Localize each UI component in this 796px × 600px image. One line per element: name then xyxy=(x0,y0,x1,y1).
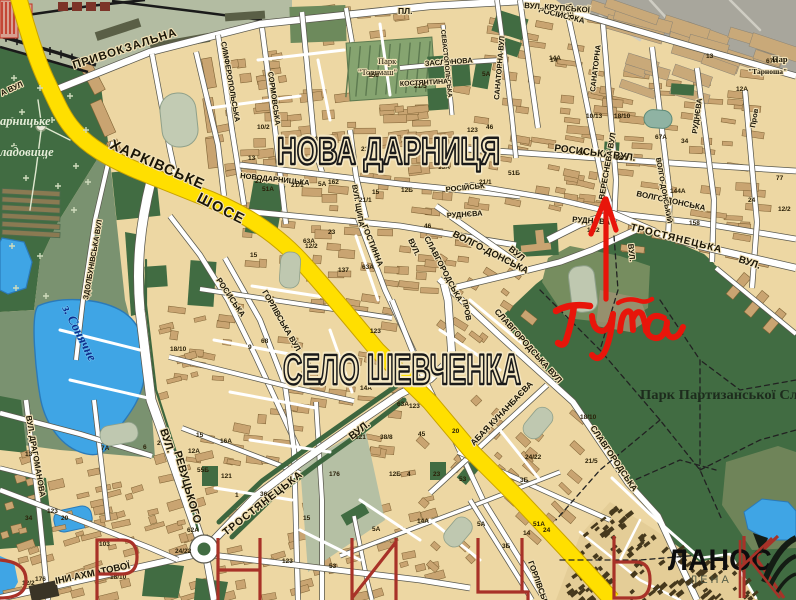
svg-text:123: 123 xyxy=(370,328,381,335)
svg-text:14: 14 xyxy=(550,57,558,64)
svg-text:51Б: 51Б xyxy=(508,170,520,177)
svg-text:176: 176 xyxy=(35,576,46,583)
svg-text:23: 23 xyxy=(328,229,336,236)
svg-text:ВУЛ.: ВУЛ. xyxy=(626,243,637,262)
svg-text:15: 15 xyxy=(372,189,380,196)
svg-text:7А: 7А xyxy=(101,445,110,452)
svg-text:63А: 63А xyxy=(303,238,315,245)
svg-text:34: 34 xyxy=(681,138,689,145)
svg-text:15: 15 xyxy=(250,252,258,259)
svg-text:20: 20 xyxy=(452,428,460,435)
svg-text:5А: 5А xyxy=(372,526,381,533)
svg-text:23: 23 xyxy=(433,471,441,478)
svg-text:51А: 51А xyxy=(262,186,274,193)
svg-text:123: 123 xyxy=(409,403,420,410)
svg-text:21/1: 21/1 xyxy=(291,182,304,189)
svg-text:21/5: 21/5 xyxy=(414,83,427,90)
svg-text:15: 15 xyxy=(196,432,204,439)
svg-text:36: 36 xyxy=(260,491,268,498)
svg-text:123: 123 xyxy=(282,558,293,565)
svg-text:15: 15 xyxy=(303,515,311,522)
svg-text:ладовище: ладовище xyxy=(0,145,54,159)
svg-text:162: 162 xyxy=(328,179,339,186)
svg-text:38/8: 38/8 xyxy=(380,434,393,441)
svg-text:1: 1 xyxy=(235,492,239,499)
svg-text:62А: 62А xyxy=(187,527,199,534)
svg-text:158: 158 xyxy=(368,72,379,79)
svg-text:24: 24 xyxy=(543,527,551,534)
svg-text:53: 53 xyxy=(459,476,467,483)
svg-text:63А: 63А xyxy=(397,401,409,408)
svg-text:121: 121 xyxy=(355,434,366,441)
svg-text:ПЛ.: ПЛ. xyxy=(398,6,412,16)
svg-text:77: 77 xyxy=(776,175,784,182)
svg-text:3А: 3А xyxy=(578,150,587,157)
svg-text:18/10: 18/10 xyxy=(614,113,631,120)
svg-text:158: 158 xyxy=(689,220,700,227)
svg-text:67А: 67А xyxy=(766,58,778,65)
svg-text:21: 21 xyxy=(255,178,263,185)
svg-text:55Б: 55Б xyxy=(197,467,209,474)
svg-text:20: 20 xyxy=(61,515,69,522)
svg-text:144А: 144А xyxy=(670,188,686,195)
svg-text:46: 46 xyxy=(486,124,494,131)
svg-text:24: 24 xyxy=(748,197,756,204)
svg-text:103: 103 xyxy=(99,541,110,548)
svg-text:46: 46 xyxy=(424,223,432,230)
svg-text:34: 34 xyxy=(25,515,33,522)
svg-text:"Тарноша": "Тарноша" xyxy=(748,67,787,76)
svg-text:24/22: 24/22 xyxy=(525,454,542,461)
svg-text:5А: 5А xyxy=(477,521,486,528)
svg-text:121: 121 xyxy=(221,473,232,480)
svg-text:51А: 51А xyxy=(533,521,545,528)
svg-text:4: 4 xyxy=(407,471,411,478)
svg-text:12/2: 12/2 xyxy=(778,206,791,213)
svg-text:13: 13 xyxy=(248,155,256,162)
svg-text:67А: 67А xyxy=(655,134,667,141)
svg-text:НОВА ДАРНИЦЯ: НОВА ДАРНИЦЯ xyxy=(277,131,500,173)
svg-text:63А: 63А xyxy=(362,264,374,271)
svg-text:12Б: 12Б xyxy=(389,471,401,478)
svg-text:13: 13 xyxy=(25,451,33,458)
svg-text:арницьке: арницьке xyxy=(0,114,51,128)
svg-text:45: 45 xyxy=(418,431,426,438)
svg-text:21/1: 21/1 xyxy=(359,197,372,204)
svg-text:ЛАНОС: ЛАНОС xyxy=(668,544,772,577)
svg-text:9: 9 xyxy=(248,344,252,351)
svg-text:12А: 12А xyxy=(188,448,200,455)
svg-text:СЕЛО ШЕВЧЕНКА: СЕЛО ШЕВЧЕНКА xyxy=(283,346,521,394)
svg-text:24/22: 24/22 xyxy=(175,548,192,555)
svg-text:10/13: 10/13 xyxy=(586,113,603,120)
svg-text:21/1: 21/1 xyxy=(479,179,492,186)
svg-text:2: 2 xyxy=(157,440,161,447)
svg-text:137: 137 xyxy=(338,267,349,274)
svg-text:6: 6 xyxy=(143,444,147,451)
svg-text:Парк: Парк xyxy=(378,56,397,66)
svg-text:176: 176 xyxy=(329,471,340,478)
svg-text:3Б: 3Б xyxy=(520,477,529,484)
svg-text:53: 53 xyxy=(329,563,337,570)
svg-text:5А: 5А xyxy=(482,71,491,78)
svg-text:10/2: 10/2 xyxy=(257,124,270,131)
svg-text:68: 68 xyxy=(261,338,269,345)
svg-text:16А: 16А xyxy=(220,438,232,445)
svg-text:12А: 12А xyxy=(736,86,748,93)
svg-text:ЛЕНА: ЛЕНА xyxy=(690,574,732,586)
svg-text:123: 123 xyxy=(47,508,58,515)
svg-text:18/10: 18/10 xyxy=(170,346,187,353)
svg-text:12Б: 12Б xyxy=(401,187,413,194)
svg-text:14А: 14А xyxy=(417,518,429,525)
svg-text:3Б: 3Б xyxy=(502,543,511,550)
svg-text:12/1: 12/1 xyxy=(615,155,628,162)
svg-text:18/10: 18/10 xyxy=(580,414,597,421)
svg-text:Парк Партизанської Сл: Парк Партизанської Сл xyxy=(640,387,796,402)
svg-text:14: 14 xyxy=(523,530,531,537)
svg-text:13: 13 xyxy=(706,53,714,60)
svg-text:5А: 5А xyxy=(318,181,327,188)
svg-text:21/5: 21/5 xyxy=(585,458,598,465)
